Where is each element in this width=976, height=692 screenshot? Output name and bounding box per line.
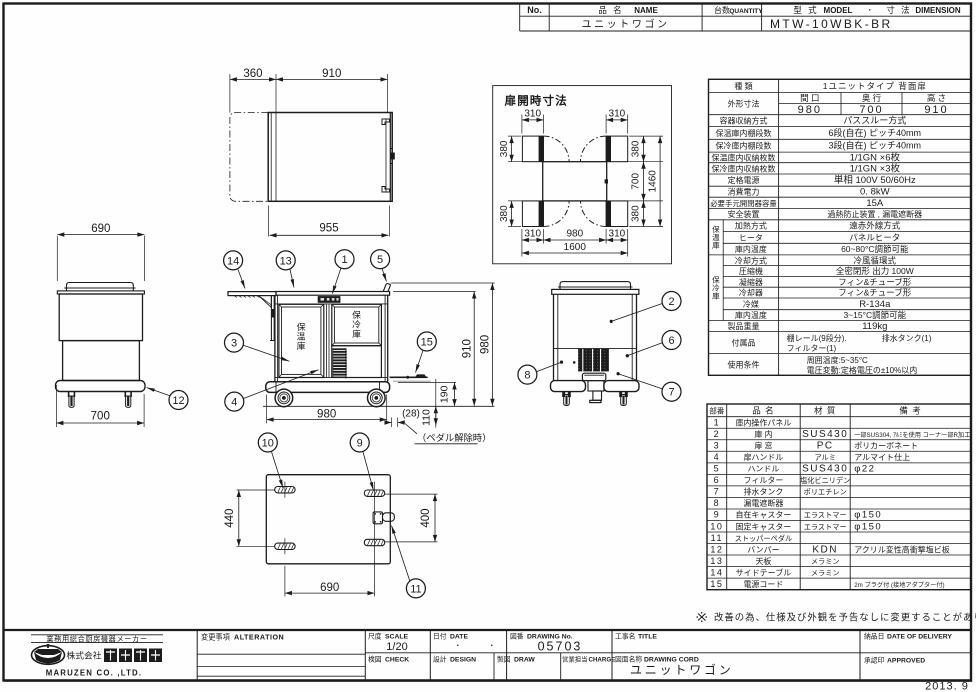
svg-text:全密閉形 出力 100W: 全密閉形 出力 100W [836,266,914,276]
svg-text:3~15°C調節可能: 3~15°C調節可能 [843,310,906,320]
svg-text:必要手元開閉器容量: 必要手元開閉器容量 [710,199,777,208]
svg-text:690: 690 [320,582,339,594]
svg-text:310: 310 [524,108,541,119]
svg-text:奥 行: 奥 行 [862,93,882,103]
svg-text:910: 910 [461,339,473,358]
svg-text:株式会社: 株式会社 [66,650,101,661]
svg-text:ヒータ: ヒータ [739,233,763,242]
svg-text:フィン&チューブ形: フィン&チューブ形 [838,277,911,287]
svg-text:310: 310 [609,229,626,240]
svg-text:SUS430: SUS430 [802,429,848,440]
svg-text:MODEL: MODEL [824,6,853,15]
svg-text:遠赤外線方式: 遠赤外線方式 [849,221,901,231]
svg-text:15: 15 [421,336,433,348]
svg-text:1/1GN ×3枚: 1/1GN ×3枚 [850,162,901,174]
svg-text:種 類: 種 類 [734,81,752,91]
svg-text:910: 910 [924,104,948,116]
svg-text:310: 310 [609,108,626,119]
svg-text:700: 700 [631,173,642,190]
svg-text:フィン&チューブ形: フィン&チューブ形 [838,288,911,298]
svg-text:3: 3 [231,338,237,350]
svg-text:110: 110 [421,409,433,426]
svg-text:0. 8kW: 0. 8kW [860,187,890,198]
svg-text:60~80°C調節可能: 60~80°C調節可能 [841,244,909,254]
svg-text:扉ハンドル: 扉ハンドル [743,452,783,462]
svg-text:APPROVED: APPROVED [887,658,925,665]
svg-text:6: 6 [714,475,721,485]
svg-text:φ150: φ150 [854,510,882,521]
svg-text:排水タンク(1): 排水タンク(1) [882,333,932,343]
svg-text:8: 8 [524,370,530,382]
svg-text:パネルヒータ: パネルヒータ [849,232,900,242]
svg-text:扉 窓: 扉 窓 [754,441,772,451]
svg-text:ユニットワゴン: ユニットワゴン [630,662,734,677]
svg-text:エラストマー: エラストマー [804,511,847,520]
svg-text:電源コード: 電源コード [743,580,783,589]
svg-text:庫: 庫 [712,240,720,250]
svg-text:SUS430: SUS430 [802,464,848,475]
svg-text:10: 10 [710,521,723,531]
svg-text:MTW-10WBK-BR: MTW-10WBK-BR [770,17,893,31]
svg-text:圧縮機: 圧縮機 [739,266,763,276]
svg-text:保温庫内棚段数: 保温庫内棚段数 [716,128,772,138]
svg-text:CHARGE: CHARGE [589,657,616,664]
svg-text:380: 380 [499,140,510,157]
svg-text:R-134a: R-134a [859,299,891,310]
svg-text:15A: 15A [866,198,884,209]
svg-text:品 名: 品 名 [598,5,623,15]
svg-text:980: 980 [566,229,583,240]
svg-text:4: 4 [714,452,721,462]
svg-text:5: 5 [377,254,383,266]
svg-text:承認印: 承認印 [864,656,885,665]
svg-text:No.: No. [527,5,542,15]
svg-text:2: 2 [668,296,674,308]
svg-text:3: 3 [714,441,721,451]
svg-text:1/20: 1/20 [386,641,407,653]
svg-text:図番: 図番 [510,633,524,641]
svg-text:9: 9 [714,510,721,520]
svg-text:ユニットワゴン: ユニットワゴン [581,18,669,31]
svg-text:φ150: φ150 [854,521,882,532]
svg-text:冷媒: 冷媒 [743,299,759,309]
svg-text:電圧変動:定格電圧の±10%以内: 電圧変動:定格電圧の±10%以内 [807,365,918,375]
svg-text:690: 690 [91,223,110,235]
svg-text:フィルター(1): フィルター(1) [787,344,837,353]
svg-text:ALTERATION: ALTERATION [234,633,284,642]
svg-text:台数: 台数 [714,5,730,15]
svg-text:庫 内: 庫 内 [754,429,772,439]
svg-text:間 口: 間 口 [800,93,819,103]
svg-text:保: 保 [297,321,306,332]
svg-text:1: 1 [341,254,347,266]
svg-text:11: 11 [711,533,723,543]
svg-text:DESIGN: DESIGN [450,657,476,664]
svg-text:380: 380 [631,140,642,157]
svg-text:ポリカーボネート: ポリカーボネート [854,442,918,451]
svg-text:5: 5 [714,464,721,474]
svg-text:700: 700 [859,104,883,116]
svg-text:パススルー方式: パススルー方式 [843,115,906,126]
svg-text:業務用総合厨房機器メーカー: 業務用総合厨房機器メーカー [46,634,147,643]
svg-text:材 質: 材 質 [814,406,836,416]
svg-text:CHECK: CHECK [385,657,409,664]
svg-text:9: 9 [357,437,363,449]
svg-text:7: 7 [714,487,721,497]
svg-text:·: · [457,641,460,651]
svg-text:1ユニットタイプ 背面扉: 1ユニットタイプ 背面扉 [823,81,927,91]
svg-text:14: 14 [710,567,723,577]
svg-text:安全装置: 安全装置 [728,209,760,219]
svg-text:アルマイト仕上: アルマイト仕上 [854,452,910,462]
svg-text:12: 12 [710,544,723,554]
svg-text:加熱方式: 加熱方式 [735,221,767,231]
svg-text:容器収納方式: 容器収納方式 [720,116,768,126]
svg-text:品 名: 品 名 [752,406,774,416]
svg-text:保: 保 [352,309,361,320]
svg-text:自在キャスター: 自在キャスター [735,510,791,520]
svg-text:1/1GN ×6枚: 1/1GN ×6枚 [850,151,901,163]
svg-text:天板: 天板 [755,556,771,566]
svg-text:380: 380 [631,205,642,222]
svg-text:温: 温 [297,332,306,342]
svg-text:1460: 1460 [647,170,658,193]
svg-text:冷: 冷 [352,319,361,330]
svg-text:凝縮器: 凝縮器 [739,277,763,287]
svg-text:2: 2 [714,429,721,439]
svg-text:(28): (28) [402,409,420,420]
svg-text:380: 380 [499,205,510,222]
svg-text:変更事項: 変更事項 [201,633,231,642]
svg-text:TITLE: TITLE [638,634,657,641]
svg-text:工事名: 工事名 [615,632,635,641]
svg-text:6: 6 [668,335,674,347]
svg-text:サイドテーブル: サイドテーブル [736,567,792,577]
svg-text:PC: PC [817,441,834,452]
svg-text:190: 190 [439,385,451,403]
svg-text:14: 14 [227,255,239,267]
svg-text:·: · [491,641,494,651]
svg-text:980: 980 [480,335,492,354]
svg-text:910: 910 [322,68,341,80]
svg-text:2013. 9: 2013. 9 [925,681,969,692]
svg-text:700: 700 [91,411,110,423]
svg-text:NAME: NAME [634,6,658,15]
svg-text:440: 440 [224,509,236,528]
svg-text:955: 955 [319,223,338,235]
svg-text:庫: 庫 [712,291,720,301]
svg-text:扉開時寸法: 扉開時寸法 [505,94,569,108]
svg-text:排水タンク: 排水タンク [743,487,783,497]
svg-text:ストッパーペダル: ストッパーペダル [735,534,793,543]
svg-text:10: 10 [262,437,274,449]
svg-text:QUANTITY: QUANTITY [729,8,763,15]
svg-text:アクリル変性高衝撃塩ビ板: アクリル変性高衝撃塩ビ板 [854,544,950,554]
svg-text:設計: 設計 [433,655,447,664]
svg-text:6段(自在) ピッチ40mm: 6段(自在) ピッチ40mm [829,127,922,138]
svg-text:冷風循環式: 冷風循環式 [854,255,897,265]
svg-text:庫: 庫 [297,340,306,351]
svg-text:バンパー: バンパー [747,545,779,554]
svg-text:営業担当: 営業担当 [562,655,588,664]
svg-text:外形寸法: 外形寸法 [728,99,760,109]
svg-text:製図: 製図 [497,655,511,664]
svg-text:φ22: φ22 [854,464,875,475]
svg-text:改善の為、仕様及び外観を予告なしに変更することがあります。: 改善の為、仕様及び外観を予告なしに変更することがあります。 [714,612,976,623]
svg-text:119kg: 119kg [862,321,887,332]
svg-text:寸 法: 寸 法 [886,5,911,15]
svg-text:ハンドル: ハンドル [747,465,779,474]
svg-text:過熱防止装置 , 漏電遮断器: 過熱防止装置 , 漏電遮断器 [827,209,922,219]
svg-text:1600: 1600 [564,242,587,253]
svg-text:固定キャスター: 固定キャスター [735,521,791,531]
svg-text:2m プラグ付 (接地アダプター付): 2m プラグ付 (接地アダプター付) [854,581,944,589]
svg-text:部番: 部番 [709,406,724,416]
svg-text:12: 12 [172,395,184,407]
svg-text:13: 13 [280,255,292,267]
svg-text:MARUZEN CO. ,LTD.: MARUZEN CO. ,LTD. [46,668,142,677]
svg-text:8: 8 [714,498,721,508]
svg-text:·: · [869,5,872,15]
svg-text:メラミン: メラミン [811,557,840,566]
svg-text:メラミン: メラミン [811,568,840,577]
svg-text:庫: 庫 [352,328,361,339]
svg-text:360: 360 [243,68,262,80]
svg-text:980: 980 [317,408,336,420]
svg-text:15: 15 [710,579,723,589]
svg-text:保温庫内収納枚数: 保温庫内収納枚数 [712,152,776,162]
svg-text:エラストマー: エラストマー [804,522,847,531]
svg-text:（ペダル解除時）: （ペダル解除時） [417,432,491,443]
svg-text:保冷庫内収納枚数: 保冷庫内収納枚数 [712,163,776,173]
svg-text:庫内温度: 庫内温度 [735,310,767,320]
svg-text:棚レール(9段分).: 棚レール(9段分). [787,333,847,343]
svg-text:単相 100V 50/60Hz: 単相 100V 50/60Hz [834,174,916,186]
svg-text:保冷庫内棚段数: 保冷庫内棚段数 [716,141,772,151]
svg-text:漏電遮断器: 漏電遮断器 [743,498,783,508]
svg-text:DRAW: DRAW [514,657,535,664]
svg-text:検図: 検図 [368,655,382,664]
svg-text:3段(自在) ピッチ40mm: 3段(自在) ピッチ40mm [829,140,922,151]
svg-text:05703: 05703 [538,640,583,654]
svg-text:周囲温度:5~35°C: 周囲温度:5~35°C [807,355,868,365]
svg-text:付属品: 付属品 [732,337,756,347]
svg-text:DATE: DATE [450,634,468,641]
svg-text:定格電源: 定格電源 [728,175,760,185]
svg-text:DIMENSION: DIMENSION [915,6,961,15]
svg-text:高 さ: 高 さ [927,93,946,103]
svg-text:DATE OF DELIVERY: DATE OF DELIVERY [887,634,952,641]
svg-text:980: 980 [798,104,822,116]
svg-text:1: 1 [714,418,721,428]
svg-text:フィルター: フィルター [744,476,784,485]
svg-text:冷却器: 冷却器 [739,288,763,298]
svg-text:310: 310 [524,229,541,240]
svg-text:尺度: 尺度 [368,632,382,641]
svg-text:SCALE: SCALE [385,634,409,641]
svg-text:庫内操作パネル: 庫内操作パネル [735,418,791,428]
svg-text:4: 4 [231,397,237,409]
svg-text:ポリエチレン: ポリエチレン [804,488,847,497]
svg-text:備 考: 備 考 [899,406,921,416]
svg-text:冷却方式: 冷却方式 [735,255,767,265]
svg-text:7: 7 [668,387,674,399]
svg-text:13: 13 [710,556,723,566]
svg-text:型 式: 型 式 [793,5,818,15]
svg-text:庫内温度: 庫内温度 [735,244,767,254]
svg-text:KDN: KDN [812,544,838,555]
svg-text:使用条件: 使用条件 [728,359,760,369]
svg-text:日付: 日付 [433,632,447,641]
svg-text:一部SUS304, ｱﾙﾐを使用 コーナー部R加工: 一部SUS304, ｱﾙﾐを使用 コーナー部R加工 [854,431,970,439]
svg-text:塩化ビニリデン: 塩化ビニリデン [800,476,850,485]
svg-text:消費電力: 消費電力 [728,187,760,197]
svg-text:製品重量: 製品重量 [728,321,760,331]
svg-text:11: 11 [410,583,421,595]
svg-text:納品日: 納品日 [864,632,884,641]
svg-text:アルミ: アルミ [814,453,836,462]
svg-text:400: 400 [420,508,432,527]
